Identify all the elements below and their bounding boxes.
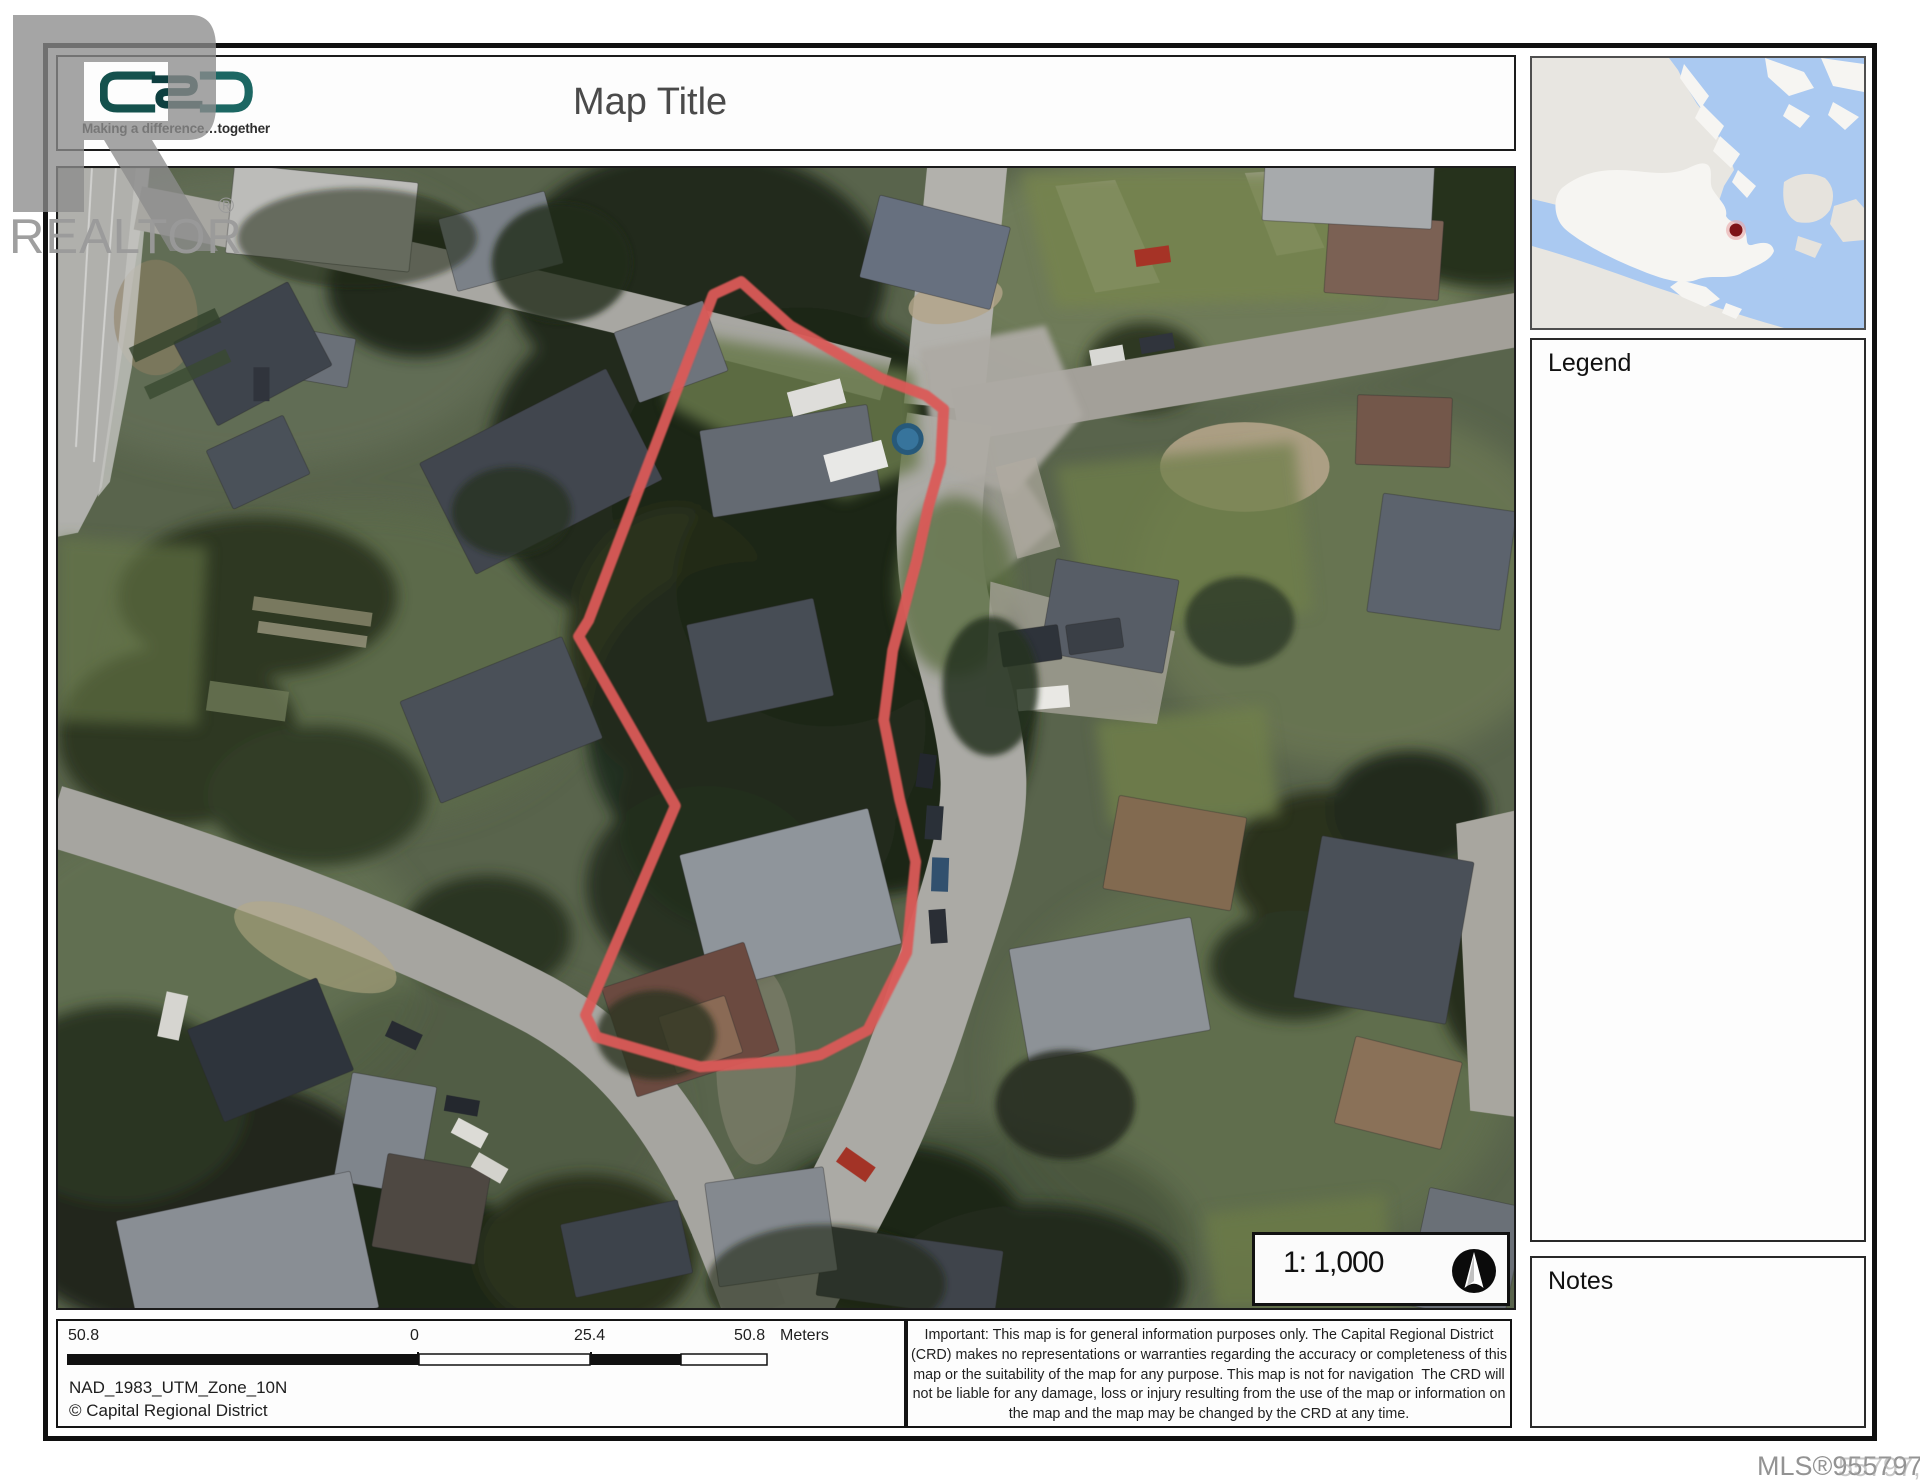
svg-text:®: ® [218,193,234,218]
svg-text:REALTOR: REALTOR [9,210,243,264]
